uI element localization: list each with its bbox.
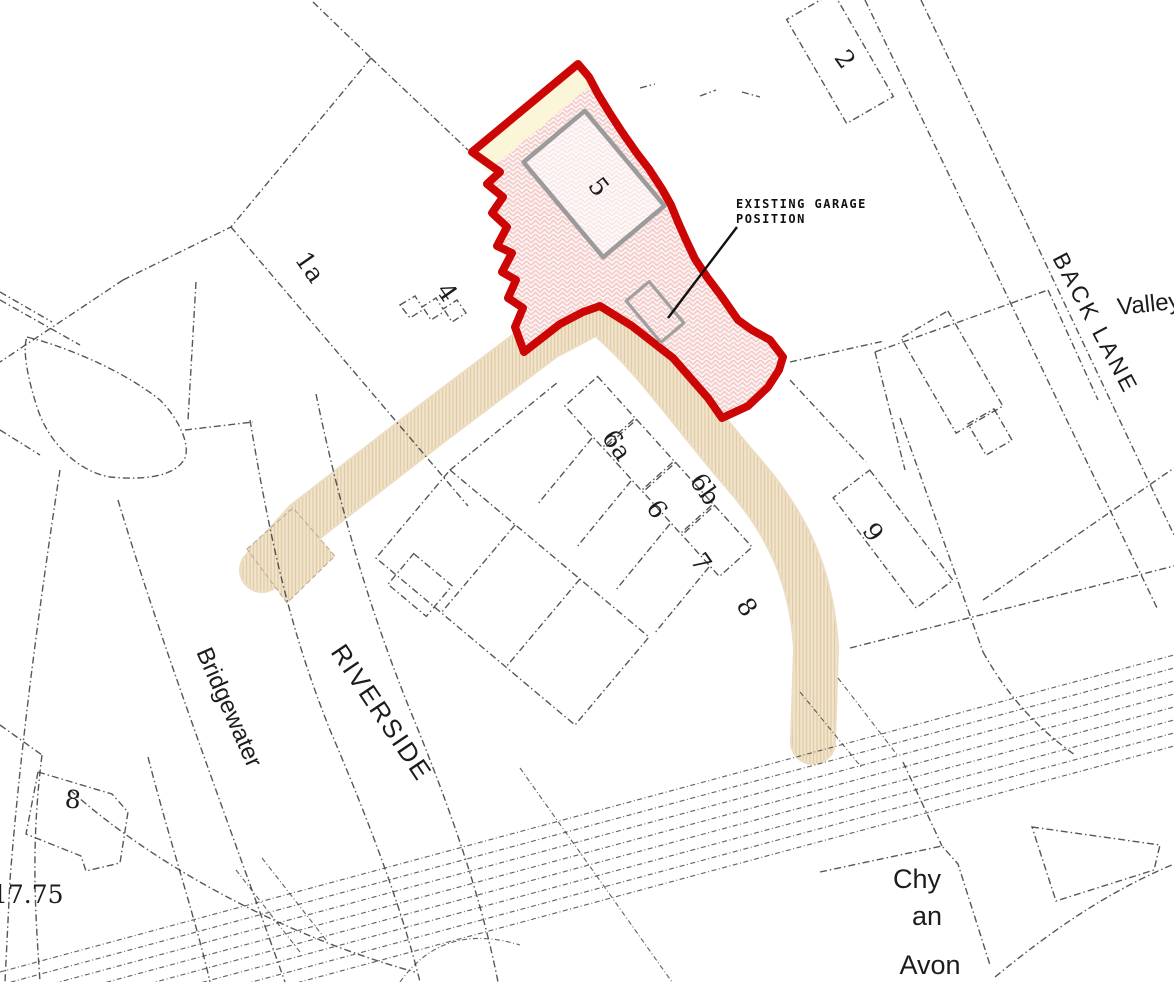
- house-2-label: 2: [829, 44, 862, 74]
- chy-line3: Avon: [899, 950, 960, 980]
- railway-lines: [0, 655, 1174, 982]
- chy-line1: Chy: [893, 864, 942, 894]
- house-7-label: 7: [685, 547, 718, 577]
- house-9-label: 9: [857, 517, 890, 547]
- house-4-label: 4: [431, 277, 464, 307]
- chy-an-avon-label: Chy an Avon: [893, 864, 961, 980]
- spot-height-label: 17.75: [0, 880, 64, 909]
- back-lane-label: BACK LANE: [1048, 248, 1144, 398]
- chy-line2: an: [912, 901, 942, 931]
- map-canvas: 5 1a 4 2 6a 6 6b 7 8 9 8 17.75 BACK LANE…: [0, 0, 1174, 982]
- house-1a-label: 1a: [289, 246, 330, 288]
- annotation-line2: POSITION: [736, 212, 806, 226]
- riverside-label: RIVERSIDE: [325, 639, 438, 787]
- annotation-line1: EXISTING GARAGE: [736, 197, 867, 211]
- house-6a-label: 6a: [596, 424, 637, 466]
- valley-label: Valley: [1116, 287, 1174, 320]
- house-8-label: 8: [731, 592, 764, 622]
- site-plan-map: 5 1a 4 2 6a 6 6b 7 8 9 8 17.75 BACK LANE…: [0, 0, 1174, 982]
- house-8sw-label: 8: [63, 784, 82, 815]
